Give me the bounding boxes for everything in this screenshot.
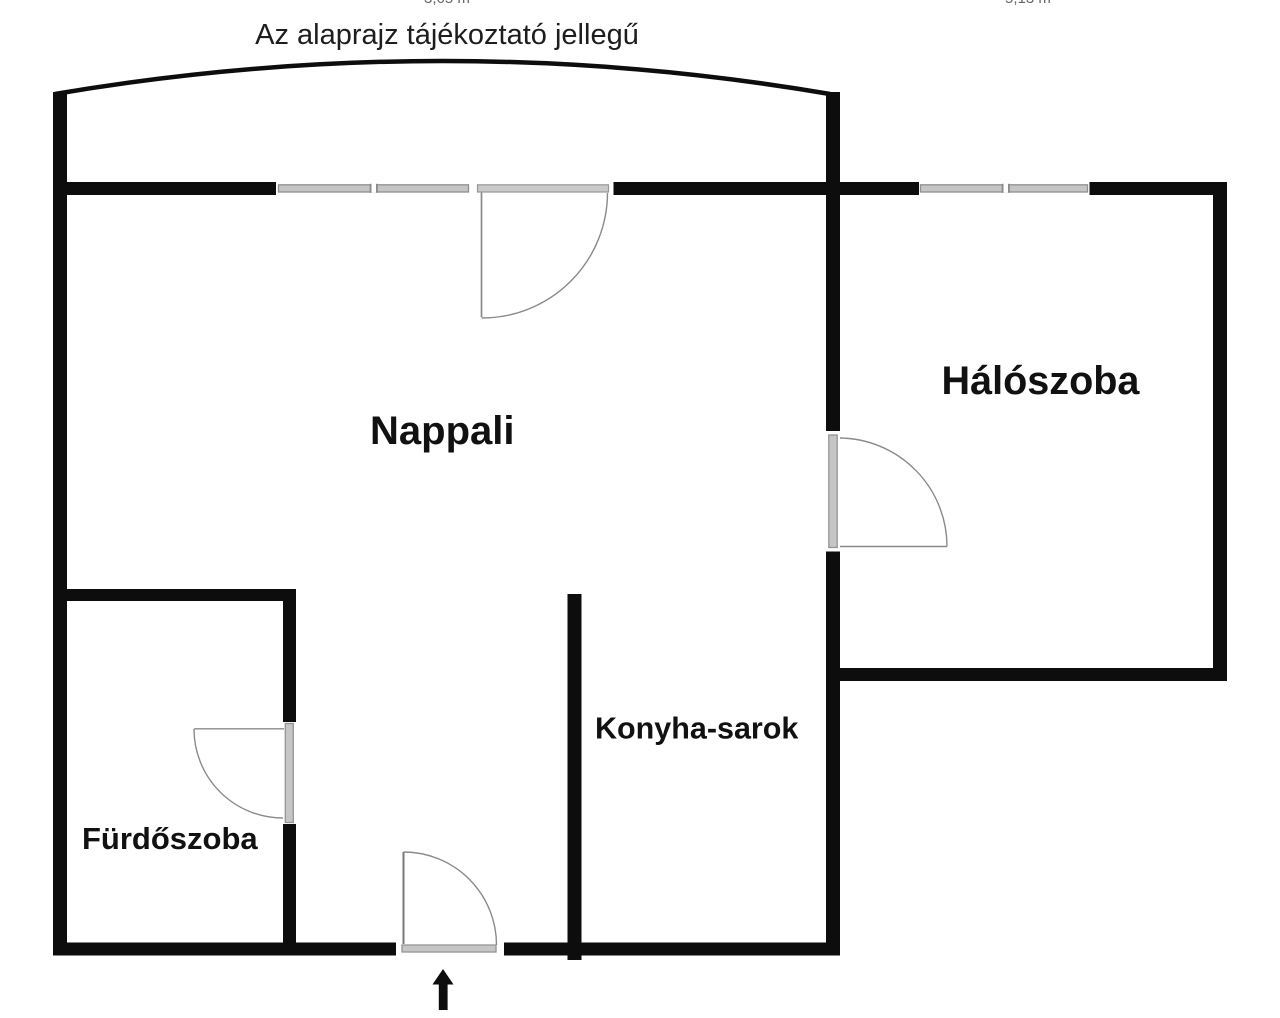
svg-text:Nappali: Nappali (370, 409, 514, 453)
svg-text:3,65 m: 3,65 m (424, 0, 470, 7)
svg-text:Konyha-sarok: Konyha-sarok (595, 712, 798, 746)
svg-text:Az alaprajz tájékoztató jelleg: Az alaprajz tájékoztató jellegű (255, 19, 639, 51)
svg-text:5,13 m: 5,13 m (1005, 0, 1051, 7)
svg-text:Fürdőszoba: Fürdőszoba (82, 821, 258, 856)
svg-text:Hálószoba: Hálószoba (942, 359, 1141, 403)
